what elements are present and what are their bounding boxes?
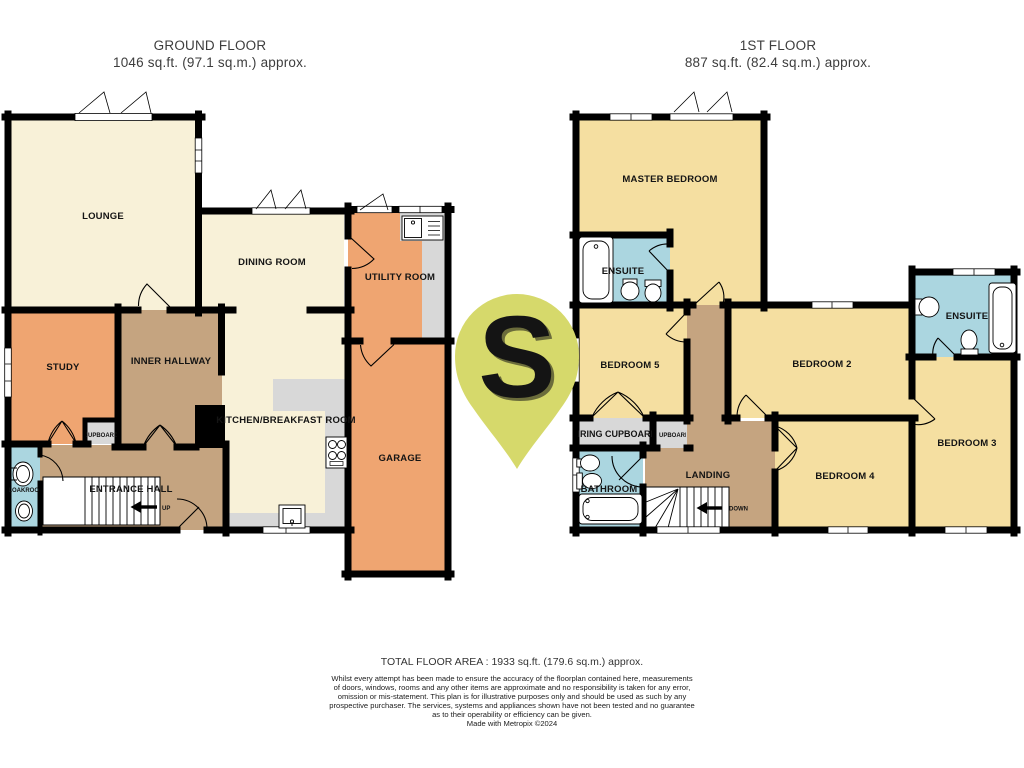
disclaimer-line: of doors, windows, rooms and any other i… <box>0 683 1024 692</box>
ground-floor-plan: LOUNGE DINING ROOM UTILITY ROOM STUDY IN… <box>4 92 451 577</box>
ensuite2-sink-icon <box>915 297 939 317</box>
floorplan-page: GROUND FLOOR 1046 sq.ft. (97.1 sq.m.) ap… <box>0 0 1024 768</box>
utility-sink-icon <box>402 216 443 240</box>
disclaimer-line: as to their operability or efficiency ca… <box>0 710 1024 719</box>
label-bedroom-2: BEDROOM 2 <box>792 359 851 370</box>
label-cloakroom: CLOAKROOM <box>4 488 44 494</box>
ensuite1-sink-icon <box>621 279 639 300</box>
ensuite2-bath-icon <box>989 283 1016 353</box>
disclaimer-line: Whilst every attempt has been made to en… <box>0 674 1024 683</box>
hob-icon <box>326 437 347 468</box>
label-lounge: LOUNGE <box>82 211 124 222</box>
label-entrance-hall: ENTRANCE HALL <box>89 484 172 495</box>
label-cupboard-ground: CUPBOARD <box>84 433 119 439</box>
watermark-pin-icon: S S <box>455 292 579 469</box>
label-inner-hallway: INNER HALLWAY <box>131 356 212 367</box>
label-stairs-up: UP <box>162 506 170 512</box>
label-airing-cupboard: AIRING CUPBOARD <box>571 429 658 439</box>
disclaimer-line: prospective purchaser. The services, sys… <box>0 701 1024 710</box>
label-bathroom: BATHROOM <box>581 484 638 495</box>
wall-block <box>195 405 225 448</box>
total-floor-area: TOTAL FLOOR AREA : 1933 sq.ft. (179.6 sq… <box>0 656 1024 668</box>
ensuite1-toilet-icon <box>645 280 661 302</box>
label-stairs-down: DOWN <box>729 507 748 513</box>
cloakroom-toilet-icon <box>16 501 33 521</box>
label-dining: DINING ROOM <box>238 257 306 268</box>
kitchen-sink-icon <box>279 505 305 528</box>
label-ensuite-2: ENSUITE <box>946 311 989 322</box>
label-bedroom-5: BEDROOM 5 <box>600 360 660 371</box>
floorplan-drawing: LOUNGE DINING ROOM UTILITY ROOM STUDY IN… <box>0 0 1024 768</box>
label-ensuite-1: ENSUITE <box>602 266 645 277</box>
kitchen-floor-strip <box>273 379 347 411</box>
first-floor-plan: MASTER BEDROOM ENSUITE BEDROOM 5 BEDROOM… <box>571 92 1017 533</box>
bathroom-bath-icon <box>579 494 642 524</box>
metropix-credit: Made with Metropix ©2024 <box>0 719 1024 728</box>
label-master-bedroom: MASTER BEDROOM <box>622 174 717 185</box>
ensuite2-toilet-icon <box>961 330 978 355</box>
disclaimer-line: omission or mis-statement. This plan is … <box>0 692 1024 701</box>
label-kitchen: KITCHEN/BREAKFAST ROOM <box>216 415 356 426</box>
label-study: STUDY <box>46 362 80 373</box>
watermark-letter: S <box>478 292 555 422</box>
label-bedroom-3: BEDROOM 3 <box>937 438 996 449</box>
footer: TOTAL FLOOR AREA : 1933 sq.ft. (179.6 sq… <box>0 656 1024 728</box>
label-utility: UTILITY ROOM <box>365 272 435 283</box>
label-landing: LANDING <box>686 470 731 481</box>
label-garage: GARAGE <box>379 453 422 464</box>
label-cupboard-first: CUPBOARD <box>655 433 690 439</box>
label-bedroom-4: BEDROOM 4 <box>815 471 875 482</box>
